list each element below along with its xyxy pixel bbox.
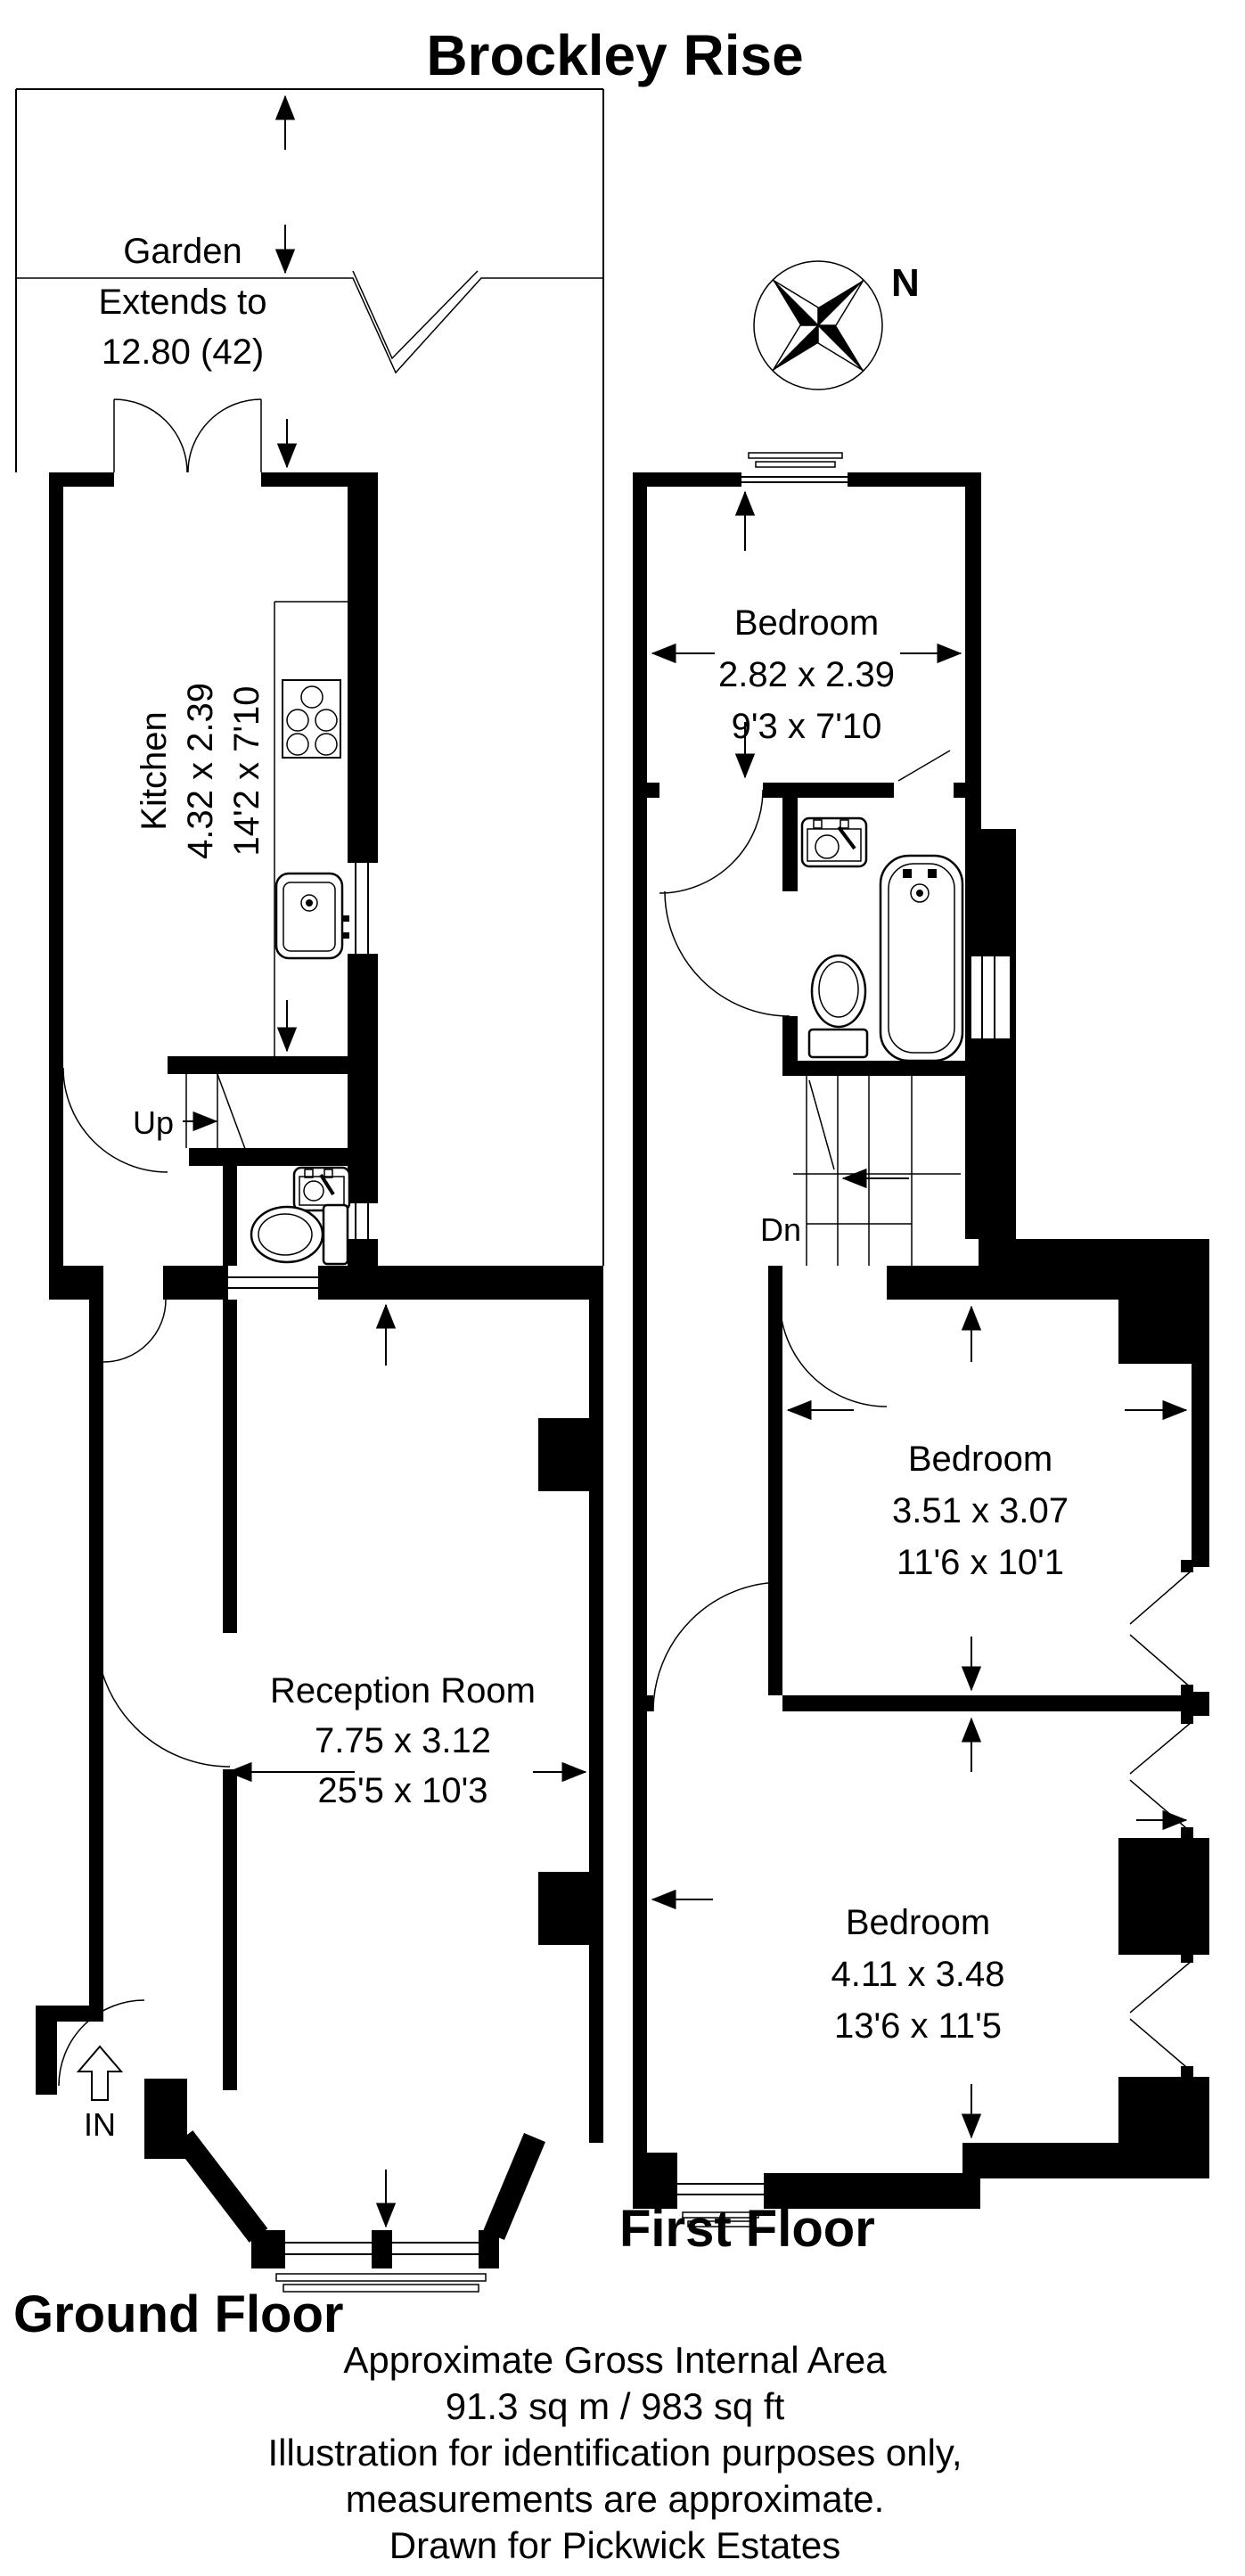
reception-label: Reception Room 7.75 x 3.12 25'5 x 10'3 [270,1671,536,1810]
compass-north-label: N [891,261,920,305]
compass-icon: N [754,261,920,390]
kitchen-name: Kitchen [135,711,174,830]
kitchen-counter [274,602,348,1056]
reception-name: Reception Room [270,1671,536,1710]
reception-metric: 7.75 x 3.12 [315,1721,491,1760]
kitchen-imperial: 14'2 x 7'10 [227,686,266,857]
footer-notes: Approximate Gross Internal Area 91.3 sq … [268,2339,962,2566]
kitchen-hob [283,680,340,758]
floorplan-page: Brockley Rise N Garden Extends to 12.80 … [0,0,1245,2576]
bathroom-bath [881,856,962,1061]
ground-floor-walls [36,399,603,2292]
entrance-label: IN [84,2106,116,2143]
bedroom-middle-imperial: 11'6 x 10'1 [897,1543,1064,1582]
dn-label: Dn [760,1211,801,1248]
page-title: Brockley Rise [426,23,803,87]
up-label: Up [133,1104,174,1141]
bedroom-middle-metric: 3.51 x 3.07 [892,1491,1069,1530]
footer-line-4: measurements are approximate. [346,2478,885,2520]
entrance-arrow-icon [78,2047,121,2100]
reception-dimension-arrows [228,1305,586,2227]
kitchen-label: Kitchen 4.32 x 2.39 14'2 x 7'10 [135,683,266,859]
bedroom-rear-imperial: 9'3 x 7'10 [732,707,882,746]
ground-floor-doors [59,1068,230,2086]
garden-label: Garden Extends to 12.80 (42) [98,232,266,372]
bedroom-front-name: Bedroom [846,1903,990,1942]
garden-line3: 12.80 (42) [102,332,264,372]
garden-boundary [16,89,603,1266]
kitchen-sink [276,874,349,958]
bedroom-middle-label: Bedroom 3.51 x 3.07 11'6 x 10'1 [892,1440,1069,1582]
ground-floor-title: Ground Floor [13,2285,344,2343]
bedroom-rear-metric: 2.82 x 2.39 [718,655,895,694]
kitchen-metric: 4.32 x 2.39 [181,683,220,859]
first-floor-stairs [793,1076,961,1266]
floorplan-drawing: Brockley Rise N Garden Extends to 12.80 … [0,0,1245,2576]
garden-line1: Garden [123,232,242,271]
bedroom-front-metric: 4.11 x 3.48 [831,1955,1005,1994]
wc-toilet [251,1205,348,1264]
footer-line-5: Drawn for Pickwick Estates [389,2524,840,2566]
bedroom-rear-name: Bedroom [734,603,879,643]
bathroom-sink [802,818,866,866]
bedroom-front-label: Bedroom 4.11 x 3.48 13'6 x 11'5 [831,1903,1005,2046]
reception-imperial: 25'5 x 10'3 [318,1771,488,1810]
footer-line-3: Illustration for identification purposes… [268,2432,962,2473]
bedroom-middle-name: Bedroom [908,1440,1053,1479]
footer-line-2: 91.3 sq m / 983 sq ft [446,2385,785,2427]
first-floor-title: First Floor [619,2200,875,2258]
footer-line-1: Approximate Gross Internal Area [343,2339,887,2381]
garden-line2: Extends to [98,283,266,322]
bedroom-front-imperial: 13'6 x 11'5 [834,2006,1002,2046]
bathroom-toilet [809,956,867,1057]
